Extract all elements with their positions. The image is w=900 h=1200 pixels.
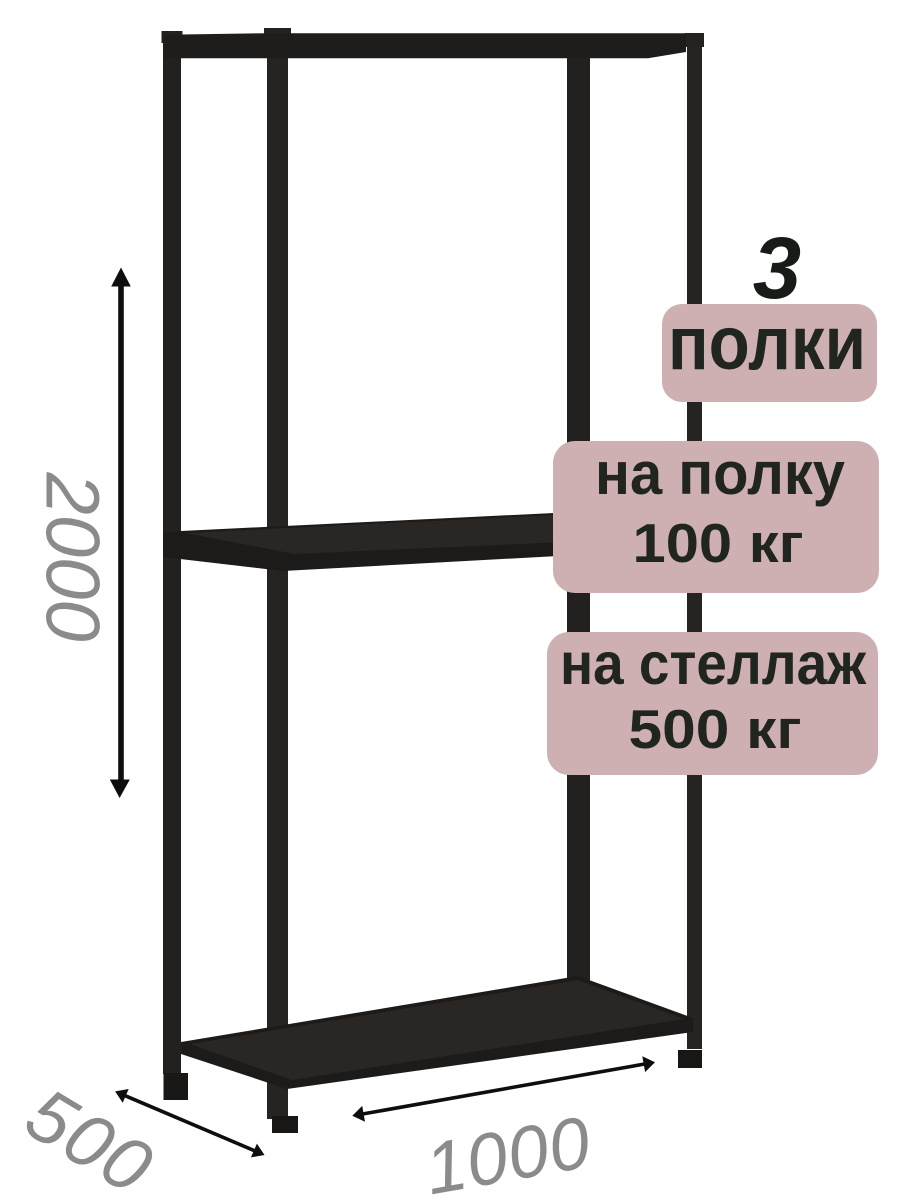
svg-text:2000: 2000 (30, 471, 115, 641)
svg-text:100 кг: 100 кг (633, 512, 804, 574)
svg-text:500 кг: 500 кг (629, 698, 802, 760)
svg-text:на полку: на полку (595, 440, 846, 507)
svg-text:полки: полки (668, 301, 866, 386)
svg-text:500: 500 (12, 1071, 168, 1200)
svg-text:1000: 1000 (419, 1102, 597, 1200)
svg-text:на стеллаж: на стеллаж (560, 631, 867, 697)
